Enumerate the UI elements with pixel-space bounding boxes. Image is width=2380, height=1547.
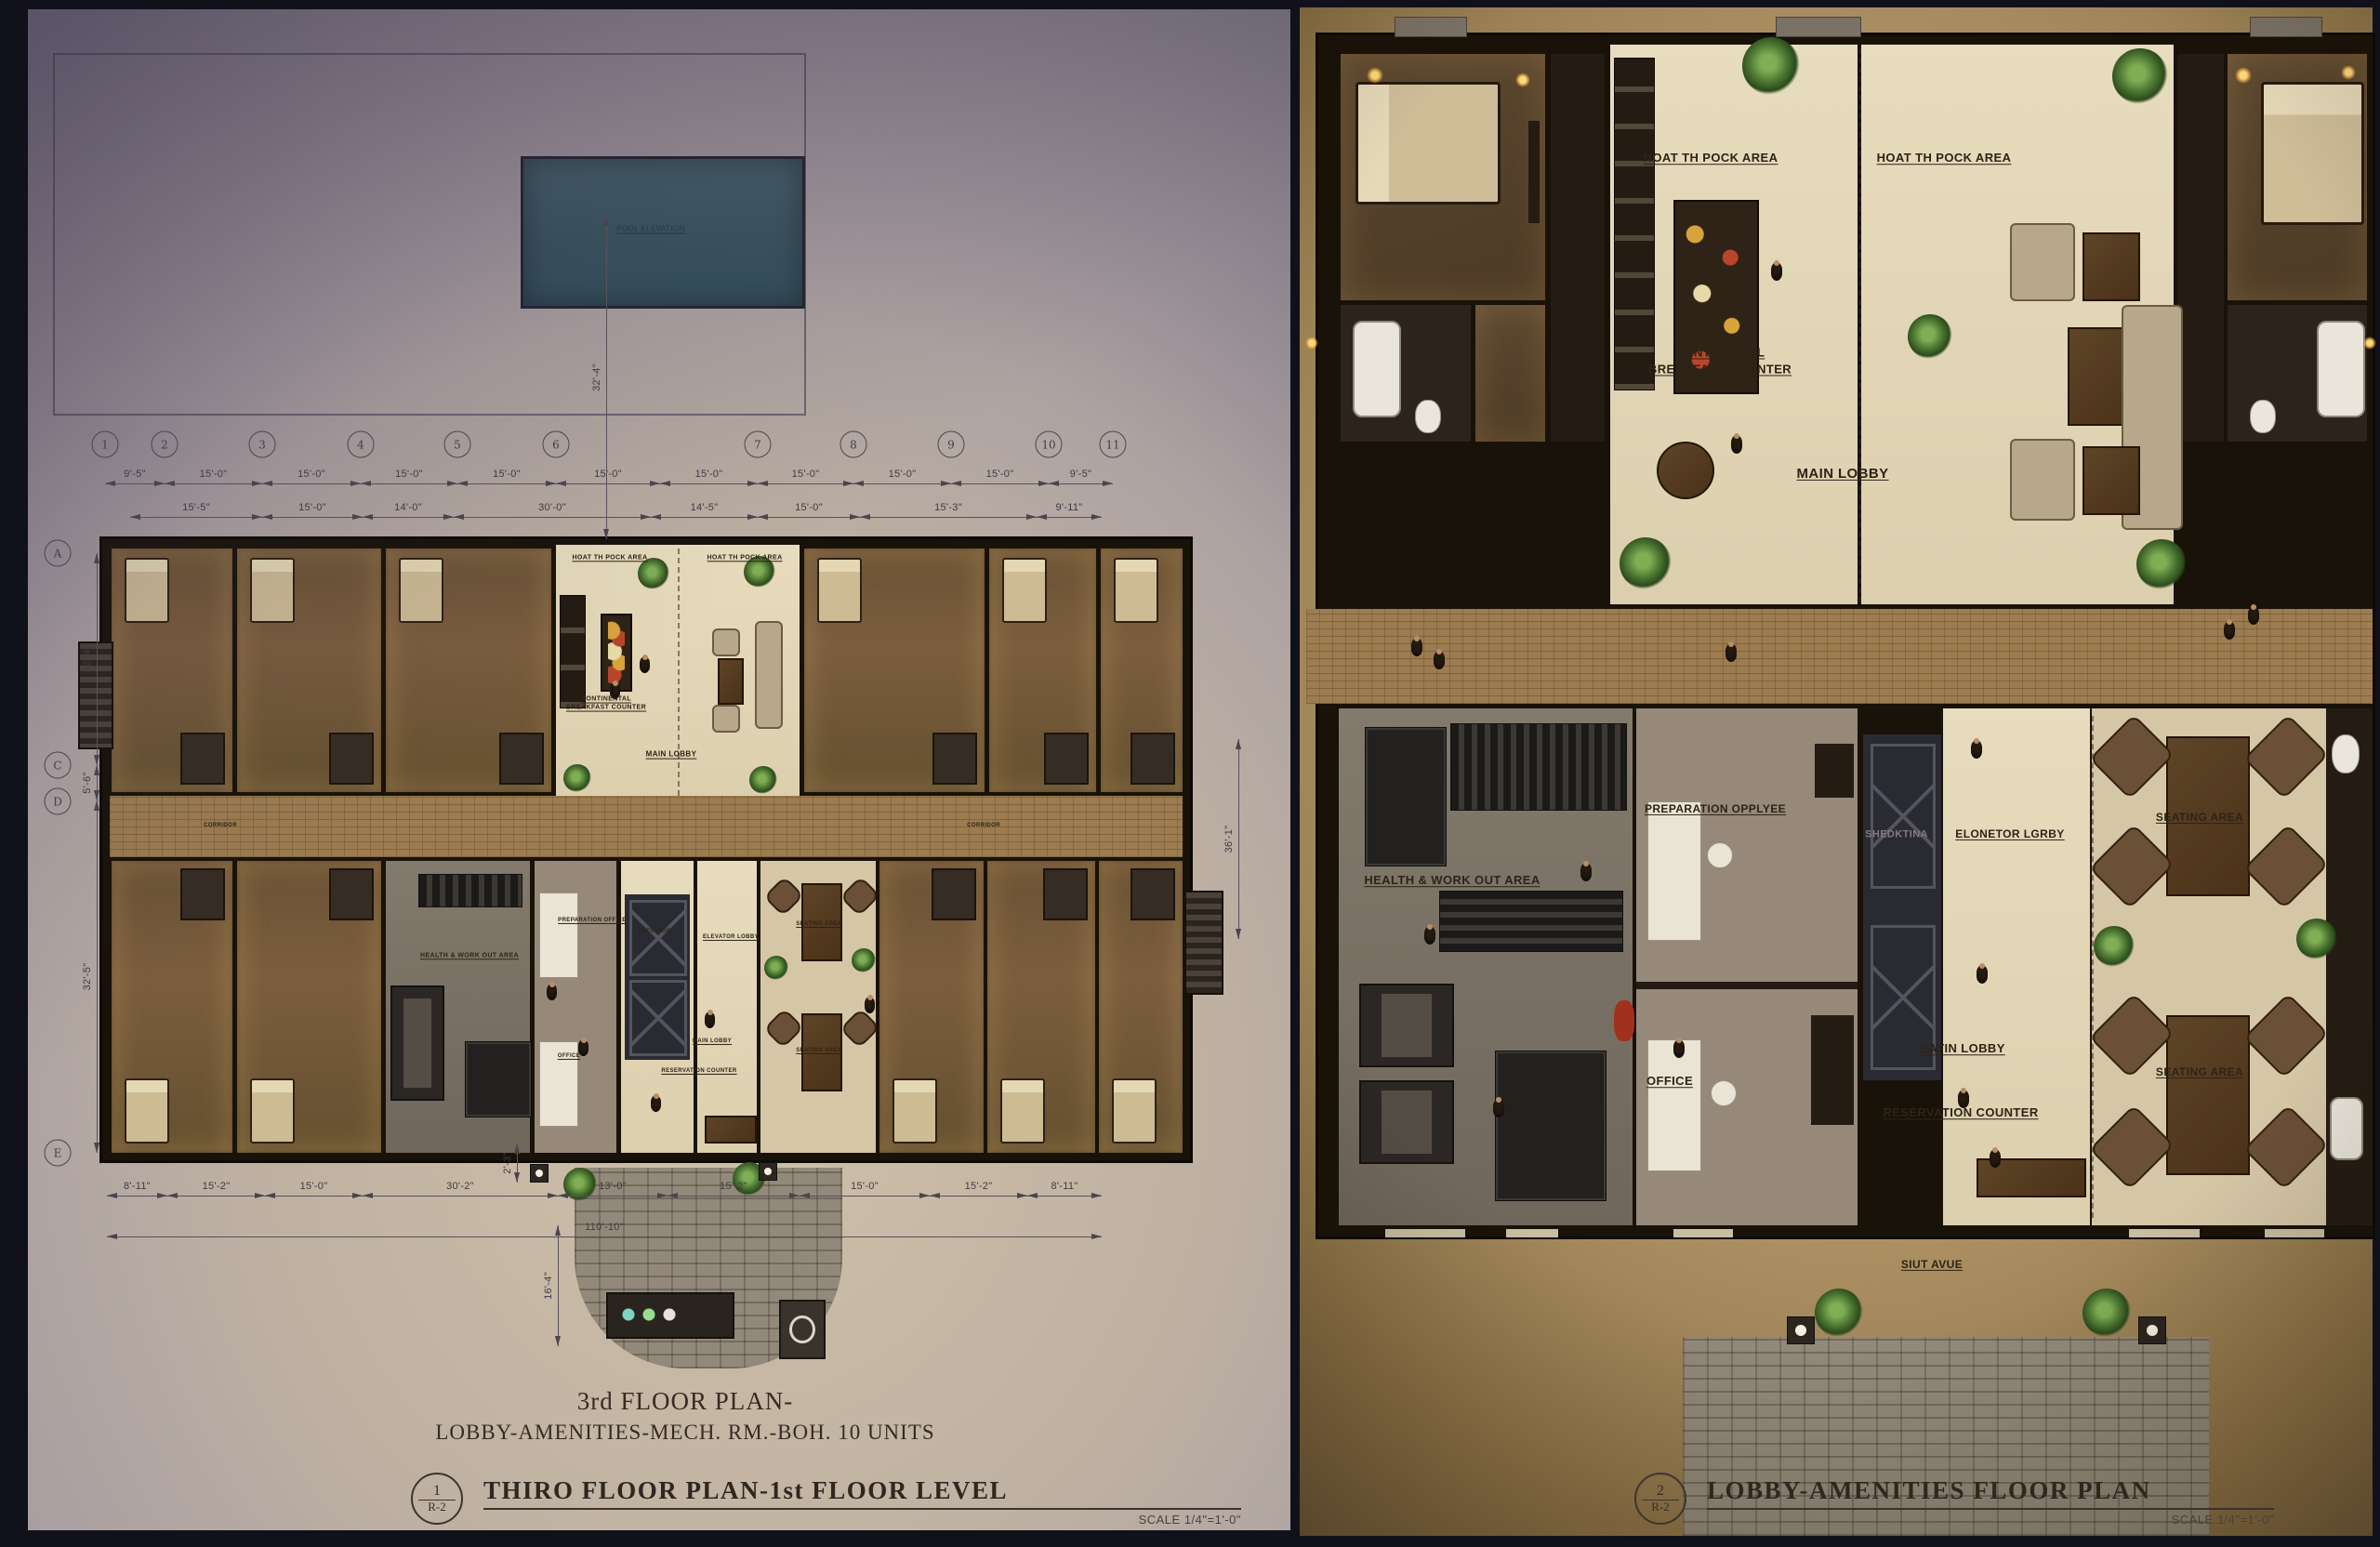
unit-room [1099, 861, 1183, 1153]
elevator-cab [629, 900, 687, 976]
breakfast-counter [601, 614, 632, 692]
sofa [755, 621, 783, 729]
cable-machine [1365, 727, 1447, 866]
window [1673, 1229, 1733, 1237]
pool [521, 156, 805, 309]
window [1385, 1229, 1465, 1237]
armchair [712, 705, 740, 733]
bed [1355, 82, 1501, 205]
palm-plant [2296, 919, 2337, 959]
detail-callout-2: 2 R-2 [1634, 1473, 1686, 1525]
lobby-divider-line [678, 549, 680, 796]
palm-plant [563, 764, 591, 792]
reservation-counter [705, 1116, 757, 1144]
palm-plant [2082, 1289, 2131, 1337]
bathtub [1353, 321, 1401, 417]
seating-table [2166, 736, 2250, 896]
person-figure [1977, 965, 1988, 984]
palm-plant [1620, 537, 1672, 589]
window [2129, 1229, 2200, 1237]
person-figure [1771, 262, 1782, 281]
armchair [2010, 439, 2075, 521]
armchair [712, 628, 740, 656]
unit-room [987, 861, 1095, 1153]
person-figure [2248, 606, 2259, 625]
palm-plant [744, 556, 775, 588]
light-fixture [530, 1164, 549, 1183]
balcony-stoop [1395, 17, 1467, 37]
seating-table [2166, 1015, 2250, 1175]
kitchen-counter [560, 595, 586, 708]
plan-title-line2: LOBBY-AMENITIES-MECH. RM.-BOH. 10 UNITS [435, 1421, 934, 1445]
partition-wall [1636, 982, 1858, 989]
wall-sconce [1305, 337, 1318, 350]
lobby-divider-line [1859, 48, 1861, 602]
palm-plant [1908, 314, 1952, 359]
treadmill [1359, 984, 1454, 1067]
unit-room [879, 861, 984, 1153]
palm-plant [852, 948, 876, 972]
side-table [2082, 446, 2140, 515]
office-desk [539, 892, 578, 978]
window [1506, 1229, 1558, 1237]
person-figure [1990, 1149, 2001, 1168]
person-figure [651, 1095, 661, 1112]
coffee-table [718, 658, 744, 705]
entry-kiosk [606, 1292, 734, 1339]
balcony-stoop [2250, 17, 2322, 37]
entry-signage [779, 1300, 826, 1359]
unit-room [237, 861, 381, 1153]
seating-table [801, 1013, 842, 1091]
palm-plant [749, 766, 777, 794]
stairwell [78, 641, 113, 749]
gym-equipment [418, 874, 522, 907]
wall-sconce [2363, 337, 2376, 350]
treadmill [1359, 1080, 1454, 1164]
person-figure [640, 656, 650, 673]
closet-block [1551, 54, 1605, 442]
office-desk [1647, 1039, 1701, 1171]
gym-equipment [1495, 1051, 1606, 1201]
elevator-shaft [625, 894, 690, 1060]
corridor [110, 796, 1183, 857]
person-figure [1731, 435, 1742, 454]
detail-number: 2 [1642, 1483, 1680, 1500]
gym-equipment [465, 1041, 532, 1117]
person-figure [2224, 621, 2235, 640]
ceiling-light [1367, 67, 1383, 84]
unit-room [112, 549, 232, 792]
light-fixture [2138, 1316, 2166, 1344]
elevator-cab [1871, 744, 1936, 889]
light-fixture [1787, 1316, 1815, 1344]
ceiling-light [2341, 65, 2356, 80]
window [2265, 1229, 2324, 1237]
copier [1815, 744, 1854, 798]
footer-scale-right: SCALE 1/4"=1'-0" [2172, 1513, 2274, 1527]
palm-plant [638, 558, 669, 589]
ceiling-light [2235, 67, 2252, 84]
bathtub [2317, 321, 2365, 417]
bed [2261, 82, 2364, 225]
person-figure [1673, 1039, 1685, 1058]
elevator-cab [629, 980, 687, 1056]
unit-room [237, 549, 381, 792]
person-figure [1424, 926, 1435, 945]
cafe-table [1657, 442, 1714, 499]
storage-cabinet [1811, 1015, 1854, 1125]
person-figure [547, 984, 557, 1000]
light-fixture [759, 1162, 777, 1181]
armchair [2010, 223, 2075, 301]
person-figure [1971, 740, 1982, 759]
seating-divider-line [2092, 716, 2094, 1218]
person-figure [865, 997, 875, 1013]
unit-room [1101, 549, 1183, 792]
palm-plant [2136, 539, 2187, 589]
office-chair [1711, 1080, 1737, 1106]
weight-rack [1450, 723, 1627, 811]
palm-plant [1742, 37, 1800, 95]
ceiling-light [1515, 73, 1530, 87]
detail-number: 1 [418, 1483, 456, 1500]
person-figure [610, 682, 620, 699]
palm-plant [2094, 926, 2135, 967]
kitchen-counter [1614, 58, 1655, 390]
seating-table [801, 883, 842, 961]
entry-walkway [1683, 1337, 2209, 1536]
elevator-cab [1871, 925, 1936, 1070]
balcony-stoop [1776, 17, 1861, 37]
toilet [1415, 400, 1441, 433]
footer-scale-left: SCALE 1/4"=1'-0" [1139, 1513, 1241, 1527]
palm-plant [1815, 1289, 1863, 1337]
breakfast-counter [1673, 200, 1759, 394]
stairwell [1184, 891, 1223, 995]
office-chair [1707, 842, 1733, 868]
elevator-lobby [697, 861, 757, 1153]
dumbbell-rack [1439, 891, 1623, 952]
toilet [2250, 400, 2276, 433]
footer-rule-right [1707, 1508, 2274, 1510]
unit-room [386, 549, 551, 792]
bathtub [2330, 1097, 2363, 1160]
tv-console [1528, 121, 1540, 223]
elevator-lobby [1943, 708, 2090, 1225]
person-figure [1411, 638, 1422, 656]
person-figure [705, 1011, 715, 1028]
rendering-canvas: 3rd FLOOR PLAN- LOBBY-AMENITIES-MECH. RM… [0, 0, 2380, 1547]
footer-title-left: THIRO FLOOR PLAN-1st FLOOR LEVEL [483, 1476, 1008, 1505]
plan-title-line1: 3rd FLOOR PLAN- [577, 1387, 794, 1416]
office-desk [1647, 801, 1701, 941]
elevator-shaft [1863, 734, 1941, 1080]
palm-plant [764, 956, 788, 980]
person-figure [1434, 651, 1445, 669]
unit-room [804, 549, 985, 792]
palm-plant [2112, 48, 2168, 104]
detail-callout-1: 1 R-2 [411, 1473, 463, 1525]
corridor [1306, 609, 2373, 704]
closet-block [2177, 54, 2224, 442]
palm-plant [563, 1168, 597, 1201]
person-figure [578, 1039, 588, 1056]
unit-room [112, 861, 232, 1153]
person-figure [1493, 1099, 1504, 1117]
person-figure [1725, 643, 1737, 662]
office-desk [539, 1041, 578, 1127]
exercise-ball [1614, 1000, 1634, 1041]
footer-rule-left [483, 1508, 1241, 1510]
sheet-number: R-2 [418, 1500, 456, 1514]
person-figure [1580, 863, 1592, 881]
person-figure [1958, 1090, 1969, 1108]
sheet-number: R-2 [1642, 1500, 1680, 1514]
toilet [2332, 734, 2360, 773]
unit-room [989, 549, 1096, 792]
guest-room [1475, 305, 1545, 442]
side-table [2082, 232, 2140, 301]
treadmill [390, 985, 444, 1101]
footer-title-right: LOBBY-AMENITIES FLOOR PLAN [1707, 1476, 2151, 1505]
